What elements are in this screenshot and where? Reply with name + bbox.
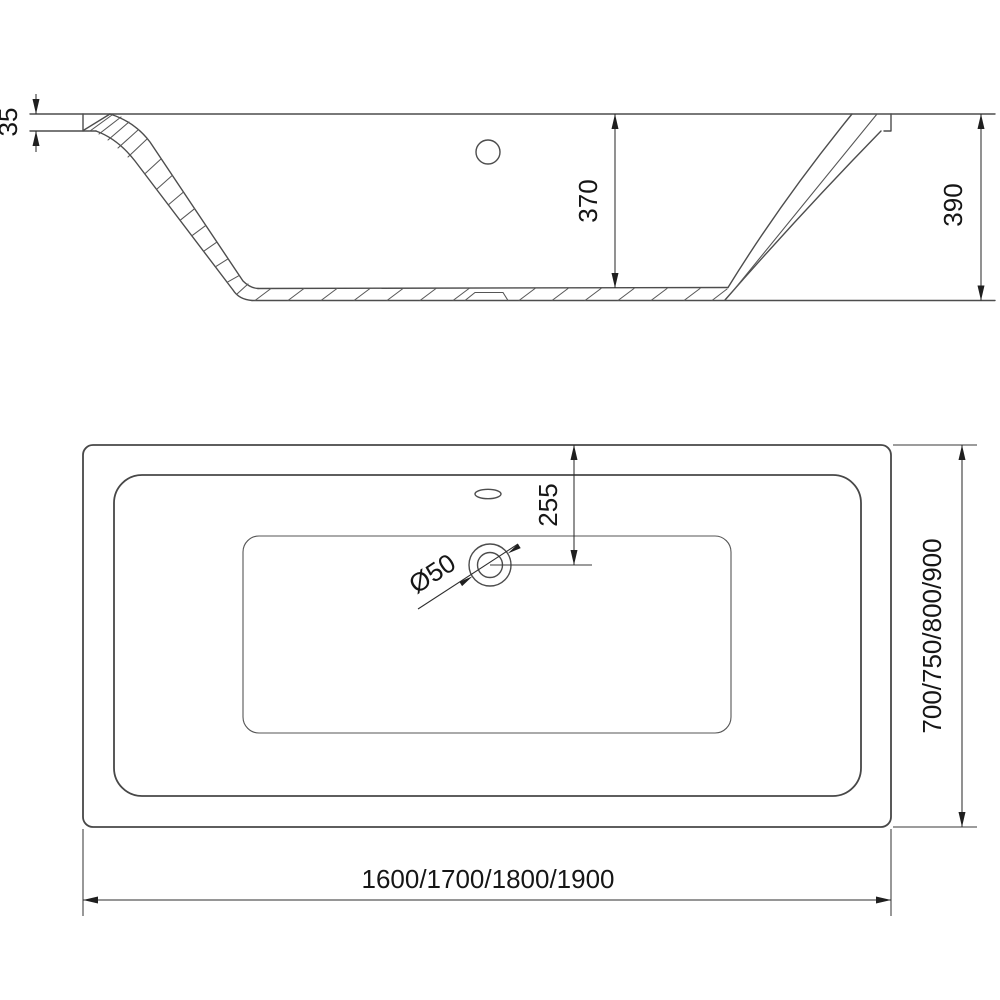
left-wall-outer-line	[96, 131, 252, 301]
tub-outer-rect	[83, 445, 891, 827]
inner-depth-label: 370	[573, 179, 603, 222]
floor-hatch-lines	[255, 289, 727, 301]
tub-rim-inner-rect	[114, 475, 861, 796]
dim-total-height: 390	[938, 114, 981, 301]
tub-right-edge-step	[884, 114, 891, 131]
dim-width-options: 700/750/800/900	[893, 445, 977, 827]
length-options-label: 1600/1700/1800/1900	[361, 864, 614, 894]
drain-diameter-label: Ø50	[403, 547, 461, 599]
left-wall-hatch-lines	[90, 115, 248, 294]
left-wall-inner-line	[110, 114, 258, 289]
overflow-hole-section	[476, 140, 500, 164]
tub-basin-floor-rect	[243, 536, 731, 733]
drain-offset-label: 255	[533, 483, 563, 526]
drain-recess-section	[465, 293, 508, 301]
dim-drain-offset: 255	[490, 445, 592, 565]
plan-view: 255 Ø50 700/750/800/900 1600/1700/1800/1…	[83, 445, 977, 916]
bathtub-drawing: 35 370 390 255	[0, 0, 1000, 1000]
dim-drain-diameter: Ø50	[403, 544, 520, 609]
dim-inner-depth: 370	[573, 114, 615, 288]
width-options-label: 700/750/800/900	[917, 538, 947, 733]
floor-top-line	[258, 288, 728, 289]
overflow-hole-plan	[475, 489, 501, 498]
right-wall-chord-line	[733, 114, 877, 291]
right-wall-inner-line	[728, 114, 852, 288]
dim-length-options: 1600/1700/1800/1900	[83, 829, 891, 916]
dim-rim-thickness: 35	[0, 94, 36, 152]
rim-thickness-label: 35	[0, 108, 23, 137]
section-view: 35 370 390	[0, 94, 995, 301]
drawing-canvas: 35 370 390 255	[0, 0, 1000, 1000]
rim-chamfer-line	[84, 114, 110, 130]
right-wall-outer-line	[725, 131, 881, 300]
total-height-label: 390	[938, 183, 968, 226]
